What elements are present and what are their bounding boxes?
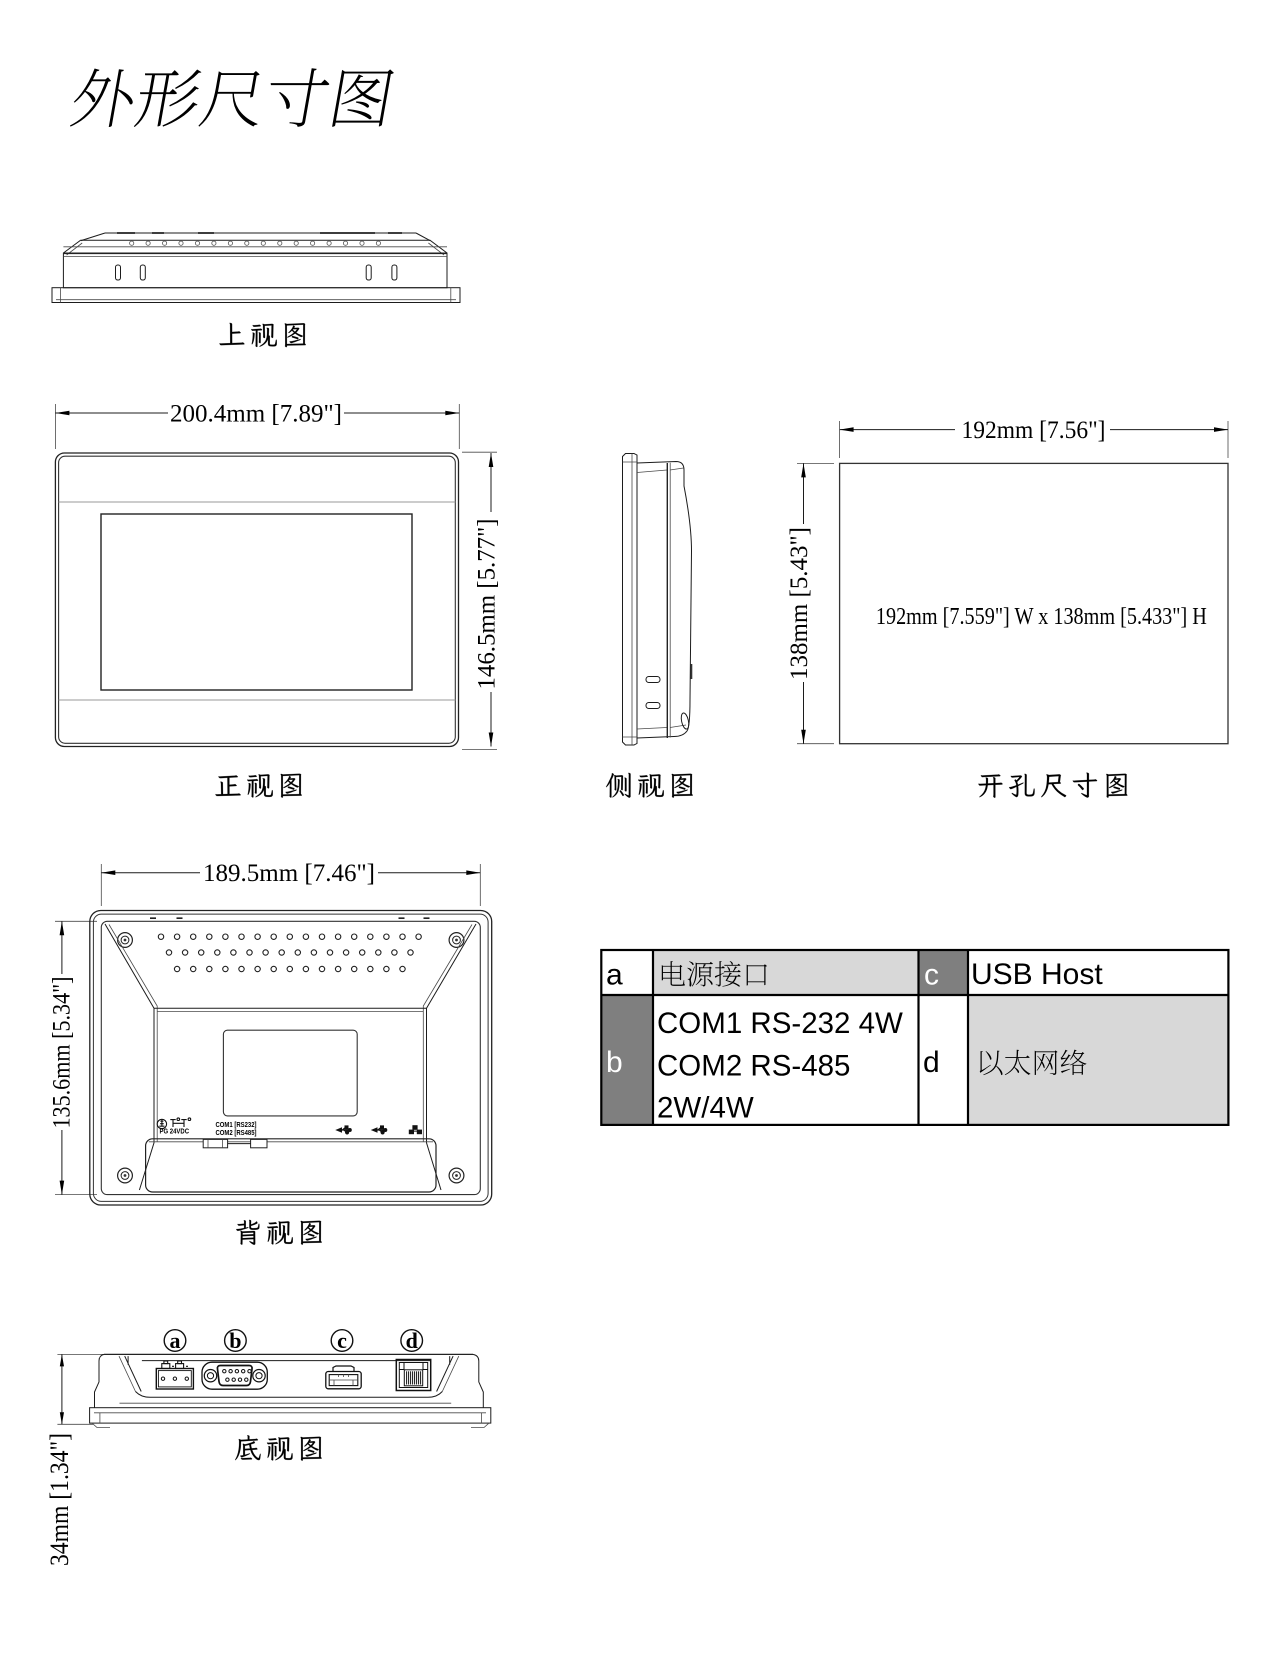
svg-text:b: b	[606, 1046, 623, 1079]
svg-text:COM1 RS-232 4W: COM1 RS-232 4W	[657, 1007, 903, 1040]
svg-text:a: a	[170, 1328, 181, 1353]
svg-text:c: c	[337, 1328, 347, 1353]
svg-text:a: a	[606, 959, 623, 992]
svg-text:192mm [7.56"]: 192mm [7.56"]	[962, 417, 1106, 444]
svg-text:d: d	[923, 1046, 940, 1079]
svg-text:200.4mm [7.89"]: 200.4mm [7.89"]	[170, 401, 342, 428]
svg-text:b: b	[229, 1328, 241, 1353]
svg-text:138mm [5.43"]: 138mm [5.43"]	[786, 527, 813, 680]
svg-text:COM1 [RS232]: COM1 [RS232]	[216, 1122, 257, 1129]
svg-text:189.5mm [7.46"]: 189.5mm [7.46"]	[203, 860, 375, 887]
svg-text:34mm [1.34"]: 34mm [1.34"]	[45, 1433, 74, 1566]
svg-text:192mm [7.559"] W x 138mm [5.43: 192mm [7.559"] W x 138mm [5.433"] H	[876, 604, 1207, 630]
svg-text:d: d	[406, 1328, 418, 1353]
svg-text:c: c	[924, 959, 939, 992]
svg-text:2W/4W: 2W/4W	[657, 1092, 754, 1125]
svg-text:PG 24VDC: PG 24VDC	[160, 1129, 190, 1136]
svg-text:135.6mm [5.34"]: 135.6mm [5.34"]	[48, 977, 75, 1129]
svg-text:146.5mm [5.77"]: 146.5mm [5.77"]	[474, 519, 501, 690]
svg-text:COM2 RS-485: COM2 RS-485	[657, 1050, 850, 1083]
svg-text:USB Host: USB Host	[971, 958, 1103, 991]
svg-text:COM2 [RS485]: COM2 [RS485]	[216, 1130, 257, 1137]
